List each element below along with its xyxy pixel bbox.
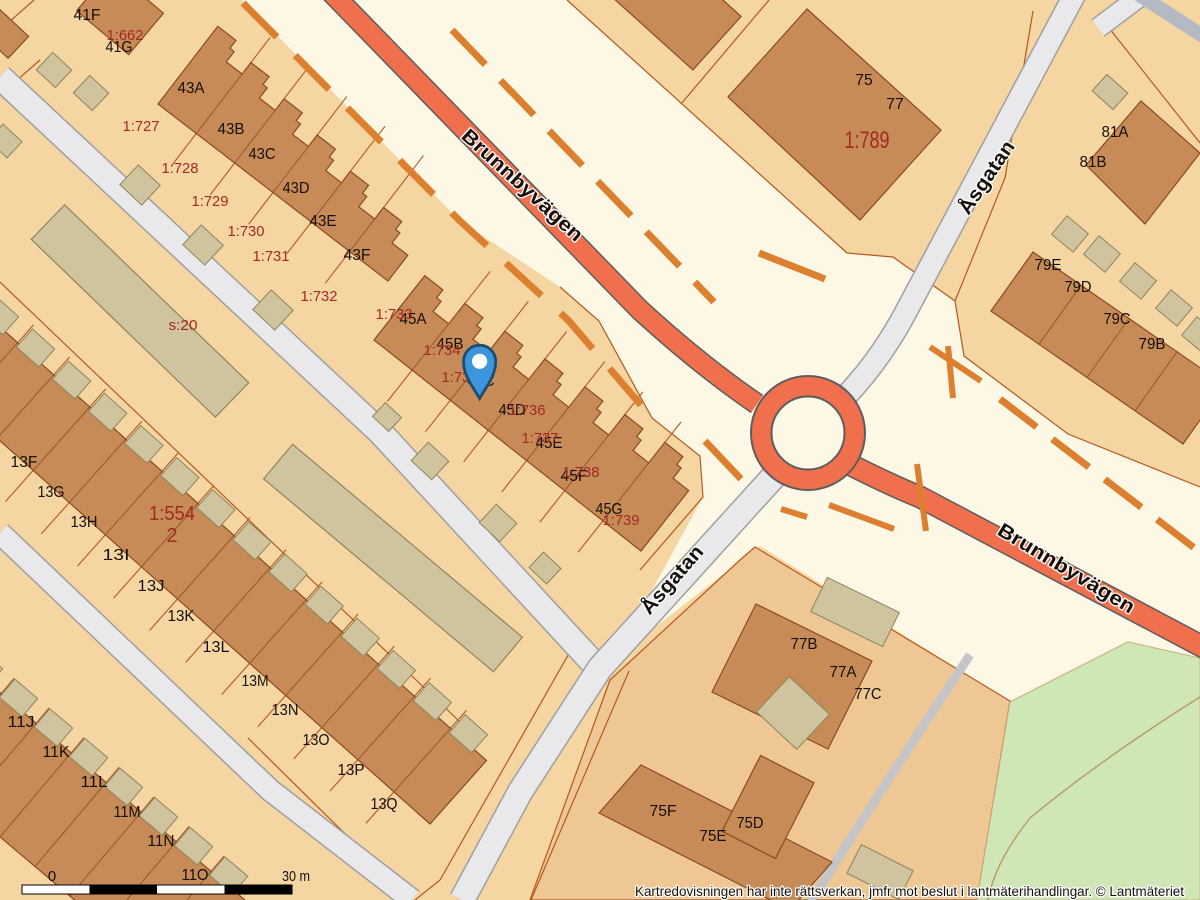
svg-text:13L: 13L: [203, 639, 230, 656]
svg-text:11K: 11K: [43, 744, 70, 761]
svg-text:13Q: 13Q: [371, 796, 398, 813]
svg-text:43C: 43C: [249, 146, 276, 163]
svg-text:43B: 43B: [218, 121, 245, 138]
svg-text:13N: 13N: [272, 702, 299, 719]
svg-text:11O: 11O: [182, 867, 209, 884]
svg-text:2: 2: [166, 525, 177, 547]
svg-text:81B: 81B: [1080, 154, 1107, 171]
svg-text:13P: 13P: [338, 762, 365, 779]
svg-text:1:731: 1:731: [253, 248, 290, 265]
svg-text:43E: 43E: [310, 213, 337, 230]
svg-text:1:739: 1:739: [603, 512, 640, 529]
svg-text:1:728: 1:728: [162, 160, 199, 177]
svg-text:81A: 81A: [1102, 124, 1129, 141]
svg-text:43F: 43F: [344, 247, 371, 264]
svg-text:13M: 13M: [242, 673, 269, 690]
svg-text:1:733: 1:733: [376, 306, 413, 323]
svg-text:1:727: 1:727: [123, 118, 160, 135]
svg-text:13O: 13O: [303, 732, 330, 749]
svg-text:1:730: 1:730: [228, 223, 265, 240]
svg-text:1:738: 1:738: [563, 464, 600, 481]
svg-text:1:729: 1:729: [192, 193, 229, 210]
svg-text:13H: 13H: [71, 514, 98, 531]
svg-text:13G: 13G: [38, 484, 65, 501]
svg-text:77C: 77C: [855, 686, 882, 703]
svg-text:1:736: 1:736: [509, 402, 546, 419]
svg-text:Kartredovisningen har inte rät: Kartredovisningen har inte rättsverkan, …: [635, 883, 1184, 899]
svg-text:11L: 11L: [81, 774, 108, 791]
svg-text:s:20: s:20: [169, 317, 198, 334]
svg-text:77B: 77B: [791, 636, 818, 653]
svg-text:30 m: 30 m: [282, 868, 310, 885]
svg-text:1:732: 1:732: [301, 288, 338, 305]
svg-text:75: 75: [855, 72, 873, 89]
svg-text:79C: 79C: [1104, 311, 1131, 328]
svg-text:13I: 13I: [103, 547, 130, 564]
svg-text:1:734: 1:734: [424, 342, 461, 359]
svg-text:11J: 11J: [8, 714, 35, 731]
svg-text:43D: 43D: [283, 180, 310, 197]
svg-text:79E: 79E: [1035, 257, 1062, 274]
svg-text:77A: 77A: [830, 664, 857, 681]
svg-text:75F: 75F: [650, 803, 677, 820]
svg-text:13J: 13J: [138, 578, 165, 595]
svg-text:41F: 41F: [74, 7, 101, 24]
svg-text:11N: 11N: [148, 833, 175, 850]
svg-text:13F: 13F: [11, 454, 38, 471]
svg-text:1:737: 1:737: [522, 430, 559, 447]
svg-text:11M: 11M: [114, 804, 141, 821]
svg-text:79B: 79B: [1139, 336, 1166, 353]
svg-text:0: 0: [48, 868, 56, 885]
svg-text:1:789: 1:789: [845, 127, 890, 154]
svg-text:13K: 13K: [168, 608, 195, 625]
svg-text:1:554: 1:554: [149, 503, 195, 525]
svg-text:1:662: 1:662: [107, 27, 144, 44]
svg-text:75E: 75E: [700, 828, 727, 845]
svg-text:75D: 75D: [737, 815, 764, 832]
svg-text:77: 77: [886, 96, 904, 113]
svg-text:43A: 43A: [178, 80, 205, 97]
svg-text:79D: 79D: [1065, 279, 1092, 296]
